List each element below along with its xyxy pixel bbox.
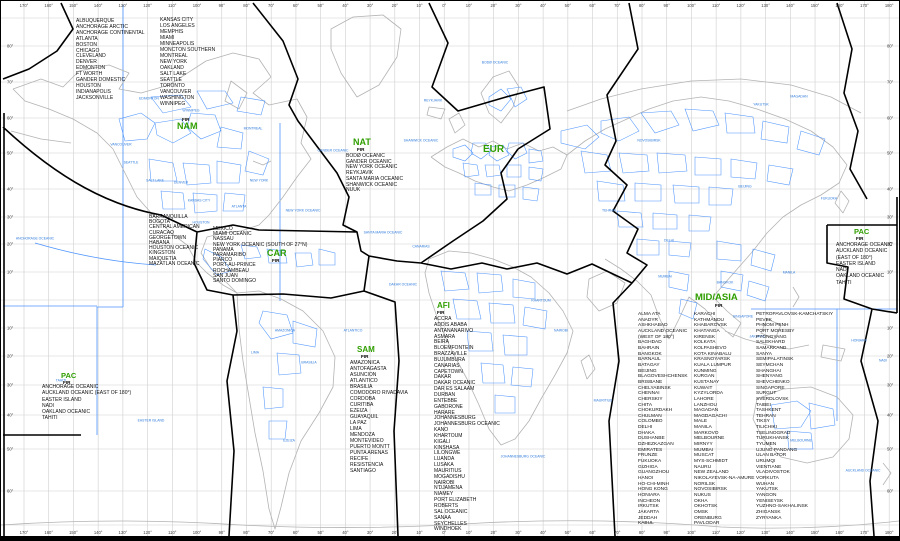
city-list-item: NUUK [346, 188, 403, 194]
longitude-tick-label: 50° [565, 3, 571, 8]
longitude-tick-label: 180° [885, 530, 894, 535]
longitude-tick-label: 110° [168, 3, 176, 8]
car-city-list-east: MEXICOMIAMI OCEANICNASSAUNEW YORK OCEANI… [213, 227, 307, 284]
fir-name-label: SHANWICK OCEANIC [404, 139, 439, 142]
sam-city-list: AMAZONICAANTOFAGASTAASUNCIONATLANTICOBRA… [350, 360, 408, 474]
nam-city-list-col2: KANSAS CITYLOS ANGELESMEMPHISMIAMIMINNEA… [160, 17, 215, 107]
latitude-tick-label: 70° [7, 80, 13, 85]
longitude-tick-label: 20° [392, 530, 398, 535]
longitude-tick-label: 10° [466, 3, 472, 8]
fir-name-label: MONTREAL [244, 127, 263, 130]
latitude-tick-label: 60° [887, 489, 893, 494]
fir-name-label: JOHANNESBURG OCEANIC [501, 455, 546, 458]
fir-name-label: AMAZONICA [275, 329, 295, 332]
longitude-tick-label: 30° [515, 3, 521, 8]
fir-name-label: BEIJING [738, 185, 751, 188]
longitude-tick-label: 40° [540, 3, 546, 8]
region-header-pac-west: PAC FIR [61, 372, 76, 385]
latitude-tick-label: 40° [7, 413, 13, 418]
longitude-tick-label: 80° [639, 530, 645, 535]
longitude-tick-label: 60° [589, 3, 595, 8]
longitude-tick-label: 160° [835, 530, 844, 535]
fir-name-label: NAIROBI [554, 329, 568, 332]
longitude-tick-label: 100° [687, 3, 696, 8]
city-list-item: TAHITI [42, 415, 131, 421]
city-list-item: NIKOLAYEVSK-NA-AMURE [694, 476, 754, 482]
longitude-tick-label: 90° [219, 3, 225, 8]
longitude-tick-label: 30° [367, 3, 373, 8]
fir-name-label: KANSAS CITY [188, 199, 210, 202]
latitude-tick-label: 60° [887, 116, 893, 121]
longitude-tick-label: 140° [786, 3, 795, 8]
latitude-tick-label: 30° [887, 215, 893, 220]
sam-fir-sublabel: FIR [361, 354, 375, 359]
longitude-tick-label: 70° [614, 530, 620, 535]
pac-west-region-label: PAC [61, 372, 76, 380]
fir-name-label: HONIARA [851, 339, 866, 342]
latitude-tick-label: 10° [887, 326, 893, 331]
fir-name-label: SEATTLE [124, 161, 139, 164]
region-header-afi: AFI FIR [437, 302, 450, 315]
latitude-tick-label: 60° [7, 116, 13, 121]
longitude-tick-label: 60° [293, 3, 299, 8]
nat-fir-sublabel: FIR [357, 147, 371, 152]
fir-name-label: NEW YORK [250, 179, 268, 182]
longitude-tick-label: 10° [416, 530, 422, 535]
fir-name-label: YAKUTSK [753, 103, 769, 106]
longitude-tick-label: 80° [243, 3, 249, 8]
latitude-tick-label: 60° [7, 489, 13, 494]
city-list-item: JACKSONVILLE [76, 96, 145, 102]
longitude-tick-label: 170° [20, 530, 29, 535]
nam-city-list-col1: ALBUQUERQUEANCHORAGE ARCTICANCHORAGE CON… [76, 19, 145, 102]
longitude-tick-label: 20° [392, 3, 398, 8]
mid-asia-city-list-col3: PETROPAVLOVSK-KAMCHATSKIYPEVEKPHNOM PENH… [756, 312, 833, 521]
city-list-item: WINNIPEG [160, 101, 215, 107]
latitude-tick-label: 50° [7, 447, 13, 452]
fir-name-label: MAGADAN [790, 95, 807, 98]
fir-name-label: WINNIPEG [182, 109, 199, 112]
longitude-tick-label: 10° [416, 3, 422, 8]
pac-west-city-list: ANCHORAGE OCEANICAUCKLAND OCEANIC (EAST … [42, 384, 131, 422]
longitude-tick-label: 50° [565, 530, 571, 535]
longitude-tick-label: 70° [268, 3, 274, 8]
region-header-nam: FIR NAM [177, 117, 198, 131]
sam-region-label: SAM [357, 346, 375, 354]
fir-name-label: REYKJAVIK [424, 99, 442, 102]
longitude-tick-label: 110° [712, 3, 720, 8]
longitude-tick-label: 80° [243, 530, 249, 535]
fir-name-label: KHARTOUM [531, 299, 550, 302]
fir-name-label: ATLANTA [232, 205, 247, 208]
afi-city-list: ACCRAADDIS ABABAANTANANARIVOASMARABEIRAB… [434, 317, 500, 533]
longitude-tick-label: 70° [268, 530, 274, 535]
mid-asia-fir-sublabel: FIR [715, 303, 738, 308]
pac-east-city-list: ANCHORAGE OCEANICAUCKLAND OCEANIC(EAST O… [836, 242, 892, 286]
latitude-tick-label: 50° [7, 151, 13, 156]
longitude-tick-label: 150° [811, 3, 820, 8]
fir-name-label: EASTER ISLAND [138, 419, 165, 422]
fir-name-label: EZEIZA [283, 439, 295, 442]
fir-name-label: CANARIAS [412, 245, 429, 248]
longitude-tick-label: 120° [143, 3, 152, 8]
city-list-item: PAVLODAR [694, 521, 754, 527]
latitude-tick-label: 10° [7, 326, 13, 331]
longitude-tick-label: 40° [540, 530, 546, 535]
fir-name-label: DENVER [174, 181, 188, 184]
latitude-tick-label: 20° [887, 354, 893, 359]
fir-name-label: BANGKOK [717, 281, 734, 284]
afi-region-label: AFI [437, 302, 450, 310]
latitude-tick-label: 40° [7, 187, 13, 192]
fir-name-label: MAURITIUS [594, 399, 613, 402]
fir-name-label: DELHI [664, 239, 674, 242]
longitude-tick-label: 160° [44, 530, 53, 535]
afi-fir-sublabel: FIR [437, 310, 450, 315]
fir-name-label: BRASILIA [301, 361, 316, 364]
pac-east-fir-sublabel: FIR [856, 236, 869, 241]
longitude-tick-label: 130° [761, 3, 770, 8]
mid-asia-region-label: MID/ASIA [695, 293, 738, 303]
fir-name-label: ATLANTICO [344, 329, 363, 332]
region-header-mid-asia: MID/ASIA FIR [695, 293, 738, 308]
fir-name-label: MUMBAI [658, 275, 672, 278]
city-list-item: MAZATLAN OCEANIC [149, 262, 200, 267]
city-list-item: SANTO DOMINGO [213, 279, 307, 284]
city-list-item: WINDHOEK [434, 527, 500, 533]
latitude-tick-label: 20° [7, 354, 13, 359]
city-list-item: ZYRYANKA [756, 516, 833, 522]
fir-name-label: BODØ OCEANIC [482, 61, 508, 64]
longitude-tick-label: 90° [664, 530, 670, 535]
longitude-tick-label: 60° [589, 530, 595, 535]
fir-name-label: NOVOSIBIRSK [637, 139, 660, 142]
longitude-tick-label: 100° [193, 530, 202, 535]
longitude-tick-label: 140° [786, 530, 795, 535]
region-header-sam: SAM FIR [357, 346, 375, 359]
longitude-tick-label: 120° [143, 530, 152, 535]
city-list-item: TAHITI [836, 280, 892, 286]
longitude-tick-label: 170° [860, 3, 869, 8]
longitude-tick-label: 180° [885, 3, 894, 8]
latitude-tick-label: 70° [887, 80, 893, 85]
longitude-tick-label: 40° [342, 3, 348, 8]
longitude-tick-label: 100° [193, 3, 202, 8]
nat-city-list: BODØ OCEANICGANDER OCEANICNEW YORK OCEAN… [346, 154, 403, 194]
longitude-tick-label: 120° [737, 530, 746, 535]
city-list-item: AUCKLAND OCEANIC [638, 329, 688, 335]
city-list-item: AUCKLAND OCEANIC [836, 248, 892, 254]
latitude-tick-label: 40° [887, 413, 893, 418]
longitude-tick-label: 160° [835, 3, 844, 8]
longitude-tick-label: 30° [367, 530, 373, 535]
longitude-tick-label: 100° [687, 530, 696, 535]
longitude-tick-label: 150° [69, 530, 78, 535]
longitude-tick-label: 120° [737, 3, 746, 8]
fir-name-label: VANCOUVER [110, 143, 131, 146]
longitude-tick-label: 130° [119, 530, 128, 535]
fir-name-label: NEW YORK OCEANIC [286, 209, 321, 212]
longitude-tick-label: 40° [342, 530, 348, 535]
mid-asia-city-list-col1: ALMA ATAANADYRASHKHABADAUCKLAND OCEANIC(… [638, 312, 688, 527]
longitude-tick-label: 0° [442, 3, 446, 8]
fir-name-label: DAKAR OCEANIC [389, 283, 417, 286]
longitude-tick-label: 70° [614, 3, 620, 8]
longitude-tick-label: 150° [69, 3, 78, 8]
car-city-list-west: BARRANQUILLABOGOTACENTRAL AMERICANCURACA… [149, 215, 200, 267]
longitude-tick-label: 60° [293, 530, 299, 535]
fir-name-label: FUKUOKA [821, 197, 837, 200]
city-list-item: AUCKLAND OCEANIC (EAST OF 180°) [42, 390, 131, 396]
longitude-tick-label: 110° [168, 530, 176, 535]
longitude-tick-label: 110° [712, 530, 720, 535]
icao-fir-world-map: 170°160°150°140°130°120°110°100°90°80°70… [0, 0, 900, 541]
latitude-tick-label: 10° [7, 270, 13, 275]
longitude-tick-label: 80° [639, 3, 645, 8]
city-list-item: PETROPAVLOVSK-KAMCHATSKIY [756, 312, 833, 318]
latitude-tick-label: 50° [887, 447, 893, 452]
nat-region-label: NAT [353, 138, 371, 147]
latitude-tick-label: 50° [887, 151, 893, 156]
longitude-tick-label: 150° [811, 530, 820, 535]
longitude-tick-label: 140° [94, 530, 103, 535]
longitude-tick-label: 90° [219, 530, 225, 535]
eur-region-label: EUR [483, 145, 504, 155]
region-header-eur: EUR [483, 145, 504, 155]
pac-east-region-label: PAC [854, 228, 869, 236]
latitude-tick-label: 20° [7, 242, 13, 247]
longitude-tick-label: 130° [119, 3, 128, 8]
fir-name-label: SALT LAKE [146, 179, 164, 182]
longitude-tick-label: 30° [515, 530, 521, 535]
region-header-nat: NAT FIR [353, 138, 371, 152]
region-header-pac-east: PAC FIR [854, 228, 869, 241]
fir-name-label: GANDER OCEANIC [318, 149, 349, 152]
latitude-tick-label: 30° [7, 215, 13, 220]
longitude-tick-label: 20° [491, 3, 497, 8]
longitude-tick-label: 170° [860, 530, 869, 535]
fir-name-label: TEHRAN [602, 209, 616, 212]
latitude-tick-label: 30° [887, 383, 893, 388]
fir-name-label: LIMA [251, 351, 259, 354]
latitude-tick-label: 40° [887, 187, 893, 192]
map-bottom-border [1, 536, 899, 540]
longitude-tick-label: 140° [94, 3, 103, 8]
fir-name-label: ANCHORAGE OCEANIC [16, 237, 54, 240]
fir-name-label: NADI [879, 359, 887, 362]
city-list-item: OAKLAND OCEANIC [836, 273, 892, 279]
longitude-tick-label: 160° [44, 3, 53, 8]
city-list-item: SANTIAGO [350, 468, 408, 474]
latitude-tick-label: 80° [887, 44, 893, 49]
longitude-tick-label: 170° [20, 3, 29, 8]
longitude-tick-label: 130° [761, 530, 770, 535]
longitude-tick-label: 50° [317, 3, 323, 8]
city-list-item: KABUL [638, 521, 688, 527]
fir-name-label: AUCKLAND OCEANIC [846, 469, 881, 472]
longitude-tick-label: 90° [664, 3, 670, 8]
latitude-tick-label: 30° [7, 383, 13, 388]
mid-asia-city-list-col2: KARACHIKATHMANDUKHABAROVSKKHATANGAKIRENS… [694, 312, 754, 527]
fir-name-label: MANILA [783, 271, 796, 274]
latitude-tick-label: 80° [7, 44, 13, 49]
longitude-tick-label: 50° [317, 530, 323, 535]
fir-name-label: SANTA MARIA OCEANIC [364, 231, 403, 234]
nam-region-label: NAM [177, 122, 198, 131]
